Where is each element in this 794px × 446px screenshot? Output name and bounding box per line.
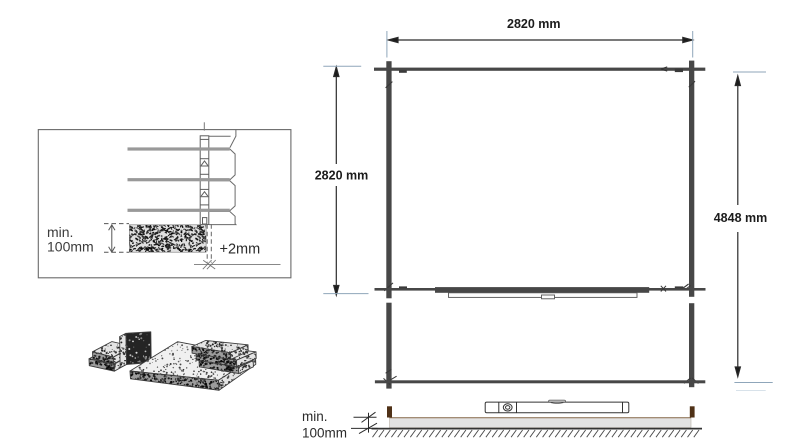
svg-text:2820 mm: 2820 mm: [507, 17, 561, 31]
svg-text:4848 mm: 4848 mm: [714, 211, 768, 225]
svg-text:min.: min.: [302, 409, 328, 424]
svg-text:+2mm: +2mm: [220, 242, 261, 258]
svg-text:2820 mm: 2820 mm: [315, 169, 369, 183]
svg-text:100mm: 100mm: [302, 426, 347, 441]
svg-text:100mm: 100mm: [47, 239, 94, 255]
